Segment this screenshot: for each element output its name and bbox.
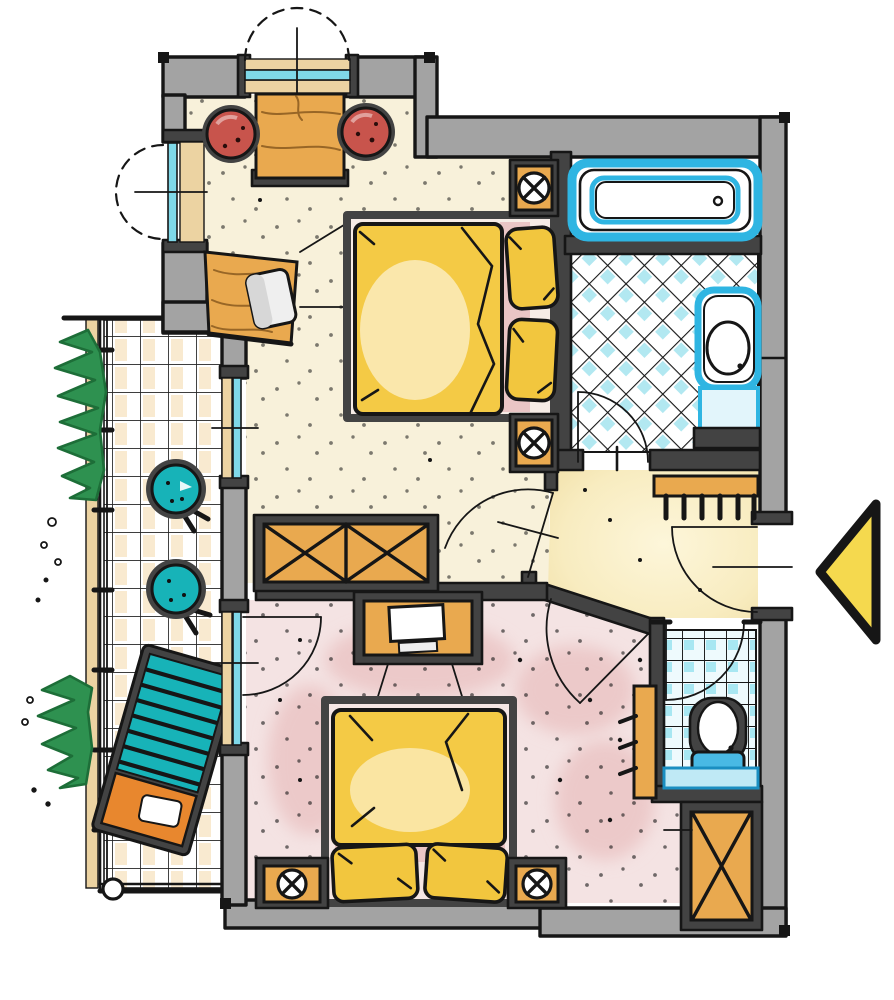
seed-marks	[22, 518, 61, 806]
balcony	[22, 318, 241, 899]
entrance-arrow-icon	[820, 504, 876, 640]
floor-plan-svg: Hand-drawn floor plan of a two-room suit…	[0, 0, 894, 1000]
nightstand-bottom-2	[508, 858, 566, 908]
corner-vanity	[205, 252, 297, 344]
railing-post	[103, 879, 123, 899]
nightstand-bottom-1	[256, 858, 328, 908]
double-bed-bottom	[325, 700, 513, 903]
desk-stool-right	[337, 103, 395, 161]
desk-top	[252, 94, 348, 186]
tv-stand	[354, 592, 482, 664]
floor-plan-canvas: Hand-drawn floor plan of a two-room suit…	[0, 0, 894, 1000]
nightstand-top-2	[510, 414, 558, 472]
washbasin	[694, 290, 760, 448]
bed-bottom-pillow-1	[332, 844, 419, 902]
plant-1	[55, 330, 106, 500]
vanity-stool	[245, 268, 297, 330]
bed-top-pillow-1	[505, 226, 558, 309]
double-bed-top	[347, 215, 559, 418]
plant-2	[38, 676, 92, 788]
wardrobe-x-front-1	[254, 515, 438, 591]
nightstand-top-1	[510, 160, 558, 216]
window-left	[116, 142, 207, 242]
bathtub	[572, 163, 758, 237]
wc-shelf	[664, 768, 758, 788]
desk-stool-left	[202, 105, 260, 163]
